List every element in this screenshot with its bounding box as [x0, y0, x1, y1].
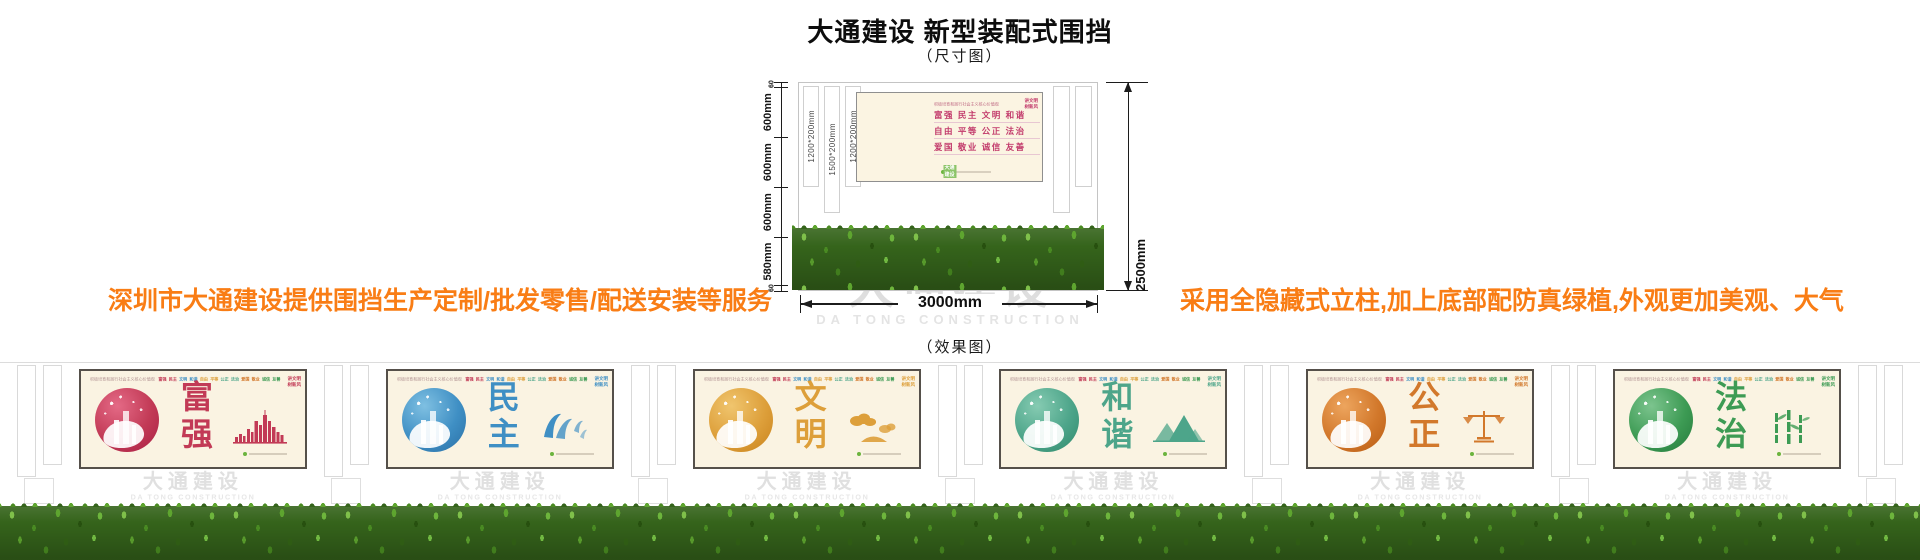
post-gap [1534, 363, 1613, 508]
value-item: 爱国 [548, 377, 556, 382]
green-dot [1777, 452, 1781, 456]
value-character: 文 [790, 379, 832, 416]
corner-note-line: 树新风 [287, 382, 301, 388]
corner-note: 讲文明树新风 [881, 376, 915, 399]
post-gap [614, 363, 693, 508]
value-character: 民 [483, 379, 525, 416]
corner-note-line: 树新风 [901, 382, 915, 388]
corner-note-lines: 讲文明树新风 [594, 376, 608, 388]
corner-note-lines: 讲文明树新风 [1822, 376, 1836, 388]
watermark-cn: 大通建设 [115, 472, 271, 492]
billboard-panel: 积极培育和践行社会主义核心价值观富强民主文明和谐自由平等公正法治爱国敬业诚信友善… [693, 369, 921, 469]
arrow-left-icon [801, 300, 812, 308]
corner-note-line: 讲文明 [1024, 98, 1038, 104]
footer-mark [243, 452, 287, 456]
value-item: 爱国 [1469, 377, 1477, 382]
slogan-text: 积极培育和践行社会主义核心价值观 [90, 377, 155, 382]
corner-note: 讲文明树新风 [574, 376, 608, 399]
papercut-silhouette [728, 409, 759, 445]
circle-artwork [1322, 388, 1386, 452]
hidden-post: 1500*200mm [824, 86, 840, 213]
post-gap [921, 363, 1000, 508]
value-item: 法治 [1765, 377, 1773, 382]
billboard-panel: 积极培育和践行社会主义核心价值观富强民主文明和谐自由平等公正法治爱国敬业诚信友善… [79, 369, 307, 469]
value-item: 富强 [1386, 377, 1394, 382]
right-note: 采用全隐藏式立柱,加上底部配防真绿植,外观更加美观、大气 [1180, 281, 1844, 317]
billboard-panel: 积极培育和践行社会主义核心价值观富强民主文明和谐自由平等公正法治爱国敬业诚信友善… [1613, 369, 1841, 469]
micro-text-bar [1169, 453, 1207, 455]
circle-artwork [402, 388, 466, 452]
value-item: 法治 [231, 377, 239, 382]
dim-segment-label: 600mm [757, 137, 779, 187]
corner-note-line: 讲文明 [594, 376, 608, 382]
doves-icon [540, 409, 594, 445]
corner-note-line: 讲文明 [287, 376, 301, 382]
corner-note-lines: 讲文明树新风 [287, 376, 301, 388]
scale-icon [1460, 409, 1514, 445]
panel-fazhi: 积极培育和践行社会主义核心价值观富强民主文明和谐自由平等公正法治爱国敬业诚信友善… [1613, 363, 1841, 508]
watermark-en: DA TONG CONSTRUCTION [700, 312, 1200, 327]
value-character: 法 [1710, 379, 1752, 416]
billboard-panel: 积极培育和践行社会主义核心价值观富强民主文明和谐自由平等公正法治爱国敬业诚信友善… [386, 369, 614, 469]
value-character: 富 [176, 379, 218, 416]
post-pair [17, 365, 62, 477]
micro-text-bar [1476, 453, 1514, 455]
value-item: 公正 [220, 377, 228, 382]
post-gap [307, 363, 386, 508]
value-characters: 富强 [176, 379, 218, 453]
corner-note-line: 树新风 [1515, 382, 1529, 388]
value-item: 法治 [538, 377, 546, 382]
total-height-label: 2500mm [1133, 82, 1148, 291]
corner-note: 讲文明树新风 [1494, 376, 1528, 399]
value-item: 敬业 [1479, 377, 1487, 382]
poster: 大通建设 新型装配式围挡 （尺寸图） 大通建设 DA TONG CONSTRUC… [0, 0, 1920, 560]
slogan-text: 积极培育和践行社会主义核心价值观 [1317, 377, 1382, 382]
slogan-text: 积极培育和践行社会主义核心价值观 [1624, 377, 1689, 382]
skyline-icon [233, 409, 287, 445]
corner-note-line: 树新风 [594, 382, 608, 388]
page-title: 大通建设 新型装配式围挡 [0, 12, 1920, 49]
hedge [0, 506, 1920, 560]
value-item: 敬业 [558, 377, 566, 382]
watermark-cn: 大通建设 [1649, 472, 1805, 492]
papercut-silhouette [1035, 409, 1066, 445]
mountains-icon [1153, 409, 1207, 445]
value-item: 公正 [527, 377, 535, 382]
post-gap [0, 363, 79, 508]
hidden-post [1075, 86, 1092, 187]
papercut-silhouette [1648, 409, 1679, 445]
value-item: 法治 [1151, 377, 1159, 382]
slogan-text: 积极培育和践行社会主义核心价值观 [934, 101, 982, 104]
value-item: 富强 [158, 377, 166, 382]
effect-diagram-label: （效果图） [0, 336, 1920, 357]
green-dot [550, 452, 554, 456]
total-width-label: 3000mm [898, 294, 1002, 312]
value-item: 爱国 [1775, 377, 1783, 382]
hidden-post [1053, 86, 1070, 213]
value-item: 敬业 [865, 377, 873, 382]
post-size-label: 1200*200mm [807, 110, 816, 163]
corner-note-line: 讲文明 [901, 376, 915, 382]
corner-note-lines: 讲文明树新风 [1515, 376, 1529, 388]
core-values-row: 自由 平等 公正 法治 [934, 123, 1040, 139]
corner-note-line: 树新风 [1822, 382, 1836, 388]
dim-tick [774, 291, 788, 292]
size-diagram-label: （尺寸图） [0, 45, 1920, 66]
corner-note-line: 讲文明 [1515, 376, 1529, 382]
corner-note-line: 讲文明 [1822, 376, 1836, 382]
value-character: 强 [176, 416, 218, 453]
value-item: 爱国 [855, 377, 863, 382]
papercut-silhouette [114, 409, 145, 445]
value-item: 富强 [465, 377, 473, 382]
watermark-cn: 大通建设 [1035, 472, 1191, 492]
billboard-panel: 积极培育和践行社会主义核心价值观 富强 民主 文明 和谐自由 平等 公正 法治爱… [856, 92, 1043, 182]
value-character: 谐 [1096, 416, 1138, 453]
value-item: 公正 [834, 377, 842, 382]
value-item: 富强 [1079, 377, 1087, 382]
value-characters: 和谐 [1096, 379, 1138, 453]
post-size-label: 1500*200mm [828, 123, 837, 176]
watermark-cn: 大通建设 [422, 472, 578, 492]
value-item: 敬业 [1172, 377, 1180, 382]
footer-mark [1163, 452, 1207, 456]
effect-diagram: 积极培育和践行社会主义核心价值观富强民主文明和谐自由平等公正法治爱国敬业诚信友善… [0, 362, 1920, 508]
hidden-post [17, 365, 36, 477]
value-characters: 法治 [1710, 379, 1752, 453]
footer-mark [1777, 452, 1821, 456]
hidden-post: 1200*200mm [803, 86, 819, 187]
value-item: 法治 [1458, 377, 1466, 382]
circle-artwork [709, 388, 773, 452]
billboard-panel: 积极培育和践行社会主义核心价值观富强民主文明和谐自由平等公正法治爱国敬业诚信友善… [1306, 369, 1534, 469]
value-item: 爱国 [241, 377, 249, 382]
value-character: 主 [483, 416, 525, 453]
clouds-icon [847, 409, 901, 445]
slogan-text: 积极培育和践行社会主义核心价值观 [1010, 377, 1075, 382]
value-item: 公正 [1755, 377, 1763, 382]
value-item: 公正 [1141, 377, 1149, 382]
green-dot [1163, 452, 1167, 456]
value-item: 富强 [1693, 377, 1701, 382]
panel-gongzheng: 积极培育和践行社会主义核心价值观富强民主文明和谐自由平等公正法治爱国敬业诚信友善… [1306, 363, 1534, 508]
value-item: 法治 [844, 377, 852, 382]
papercut-silhouette [1341, 409, 1372, 445]
footer-mark [550, 452, 594, 456]
circle-artwork [1015, 388, 1079, 452]
slogan-text: 积极培育和践行社会主义核心价值观 [397, 377, 462, 382]
micro-text-bar [863, 453, 901, 455]
circle-artwork [1629, 388, 1693, 452]
arrow-up-icon [1124, 82, 1132, 92]
company-logo: 大通建设 [943, 165, 956, 178]
micro-text-bar [556, 453, 594, 455]
micro-text-bar [249, 453, 287, 455]
arrow-right-icon [1086, 300, 1097, 308]
watermark-cn: 大通建设 [729, 472, 885, 492]
panel-fuqiang: 积极培育和践行社会主义核心价值观富强民主文明和谐自由平等公正法治爱国敬业诚信友善… [79, 363, 307, 508]
dim-line-right [1128, 82, 1129, 291]
corner-note-lines: 讲文明树新风 [1208, 376, 1222, 388]
panel-wenming: 积极培育和践行社会主义核心价值观富强民主文明和谐自由平等公正法治爱国敬业诚信友善… [693, 363, 921, 508]
core-values-row: 爱国 敬业 诚信 友善 [934, 139, 1040, 155]
value-character: 治 [1710, 416, 1752, 453]
fence-row: 积极培育和践行社会主义核心价值观富强民主文明和谐自由平等公正法治爱国敬业诚信友善… [0, 363, 1920, 508]
green-dot [243, 452, 247, 456]
value-character: 正 [1403, 416, 1445, 453]
corner-note-line: 树新风 [1024, 104, 1038, 110]
value-character: 明 [790, 416, 832, 453]
value-item: 敬业 [251, 377, 259, 382]
papercut-silhouette [421, 409, 452, 445]
green-dot [1470, 452, 1474, 456]
panel-minzhu: 积极培育和践行社会主义核心价值观富强民主文明和谐自由平等公正法治爱国敬业诚信友善… [386, 363, 614, 508]
hidden-post [43, 365, 62, 465]
panel-header-row: 积极培育和践行社会主义核心价值观富强民主文明和谐自由平等公正法治爱国敬业诚信友善 [1624, 376, 1920, 382]
corner-note: 讲文明树新风 [1801, 376, 1835, 399]
corner-note: 讲文明树新风 [1187, 376, 1221, 399]
value-item: 公正 [1448, 377, 1456, 382]
footer-mark [857, 452, 901, 456]
value-item: 敬业 [1786, 377, 1794, 382]
value-item: 爱国 [1162, 377, 1170, 382]
arrow-down-icon [1124, 281, 1132, 291]
value-characters: 民主 [483, 379, 525, 453]
green-dot [857, 452, 861, 456]
value-characters: 公正 [1403, 379, 1445, 453]
footer-mark [1470, 452, 1514, 456]
value-characters: 文明 [790, 379, 832, 453]
bamboo-icon [1767, 409, 1821, 445]
micro-text-bar [1783, 453, 1821, 455]
post-gap [1227, 363, 1306, 508]
dim-segment-label: 600mm [757, 87, 779, 137]
value-character: 公 [1403, 379, 1445, 416]
value-item: 富强 [772, 377, 780, 382]
dim-segment-label: 580mm [757, 237, 779, 285]
value-character: 和 [1096, 379, 1138, 416]
hedge-small [792, 228, 1104, 290]
panel-hexie: 积极培育和践行社会主义核心价值观富强民主文明和谐自由平等公正法治爱国敬业诚信友善… [999, 363, 1227, 508]
corner-note-line: 讲文明 [1208, 376, 1222, 382]
dim-end-line [1097, 295, 1098, 313]
corner-note: 讲文明树新风 [267, 376, 301, 399]
circle-artwork [95, 388, 159, 452]
left-note: 深圳市大通建设提供围挡生产定制/批发零售/配送安装等服务 [108, 281, 772, 317]
post-gap [1841, 363, 1920, 508]
corner-note-line: 树新风 [1208, 382, 1222, 388]
corner-note: 讲文明树新风 [1004, 98, 1038, 121]
watermark-cn: 大通建设 [1342, 472, 1498, 492]
dim-segment-label: 600mm [757, 187, 779, 237]
billboard-panel: 积极培育和践行社会主义核心价值观富强民主文明和谐自由平等公正法治爱国敬业诚信友善… [999, 369, 1227, 469]
slogan-text: 积极培育和践行社会主义核心价值观 [704, 377, 769, 382]
corner-note-lines: 讲文明树新风 [901, 376, 915, 388]
